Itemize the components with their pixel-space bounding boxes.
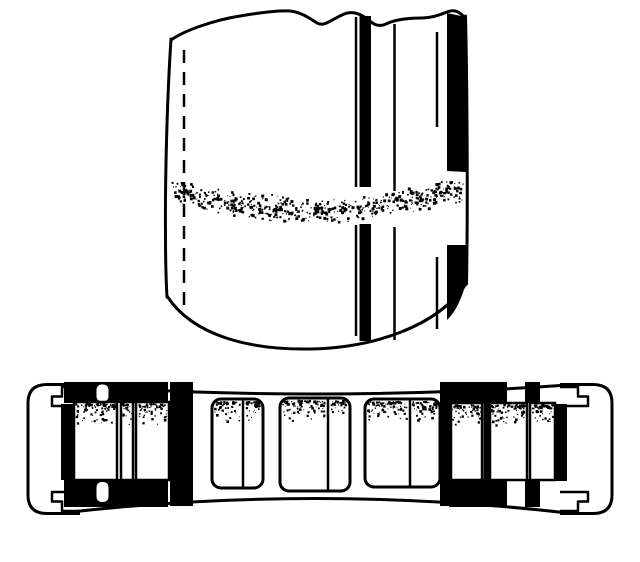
- stipple-dot: [475, 410, 476, 411]
- left-top-black-band: [64, 382, 168, 403]
- stipple-dot: [241, 205, 242, 206]
- stipple-dot: [542, 419, 544, 421]
- stipple-dot: [433, 198, 436, 201]
- stipple-dot: [523, 417, 524, 418]
- stipple-dot: [220, 406, 222, 408]
- stipple-dot: [233, 211, 235, 213]
- stipple-dot: [220, 401, 222, 403]
- stipple-dot: [340, 404, 342, 406]
- stipple-dot: [425, 401, 427, 403]
- stipple-dot: [238, 209, 240, 211]
- stipple-dot: [500, 417, 503, 420]
- stipple-dot: [541, 404, 544, 407]
- stipple-dot: [389, 197, 390, 198]
- stipple-dot: [349, 211, 351, 213]
- stipple-dot: [337, 211, 338, 212]
- stipple-dot: [497, 411, 498, 412]
- stipple-dot: [241, 211, 243, 213]
- stipple-dot: [442, 192, 443, 193]
- stipple-dot: [405, 207, 408, 210]
- stipple-dot: [454, 417, 455, 418]
- stipple-dot: [434, 194, 437, 197]
- stipple-dot: [222, 410, 223, 411]
- stipple-dot: [104, 408, 106, 410]
- stipple-dot: [164, 404, 165, 405]
- stipple-dot: [83, 411, 85, 413]
- stipple-dot: [231, 191, 234, 194]
- stipple-dot: [181, 182, 183, 184]
- stipple-dot: [456, 190, 458, 192]
- stipple-dot: [355, 201, 357, 203]
- stipple-dot: [400, 409, 402, 411]
- stipple-dot: [88, 403, 90, 405]
- stipple-dot: [248, 401, 251, 404]
- stipple-dot: [273, 216, 275, 218]
- stipple-dot: [269, 209, 271, 211]
- stipple-dot: [297, 212, 298, 213]
- stipple-dot: [345, 404, 347, 406]
- stipple-dot: [181, 184, 183, 186]
- stipple-dot: [385, 404, 386, 405]
- stipple-dot: [437, 189, 439, 191]
- stipple-dot: [547, 420, 549, 422]
- stipple-dot: [477, 407, 479, 409]
- stipple-dot: [416, 410, 417, 411]
- stipple-dot: [381, 405, 383, 407]
- stipple-dot: [425, 408, 427, 410]
- stipple-dot: [381, 207, 383, 209]
- stipple-dot: [537, 420, 538, 421]
- stipple-dot: [262, 209, 264, 211]
- stipple-dot: [86, 409, 87, 410]
- stipple-dot: [330, 216, 332, 218]
- stipple-dot: [106, 410, 107, 411]
- stipple-dot: [239, 417, 240, 418]
- stipple-dot: [262, 198, 263, 199]
- stipple-dot: [372, 409, 373, 410]
- stipple-dot: [282, 210, 283, 211]
- stipple-dot: [375, 201, 378, 204]
- stipple-dot: [236, 402, 237, 403]
- stipple-dot: [102, 418, 105, 421]
- stipple-dot: [368, 198, 369, 199]
- stipple-dot: [151, 406, 152, 407]
- stipple-dot: [362, 217, 365, 220]
- stipple-dot: [433, 404, 435, 406]
- stipple-dot: [198, 200, 200, 202]
- stipple-dot: [279, 216, 281, 218]
- stipple-dot: [385, 412, 386, 413]
- stipple-dot: [92, 407, 94, 409]
- stipple-dot: [387, 205, 388, 206]
- stipple-dot: [378, 204, 379, 205]
- stipple-dot: [391, 193, 394, 196]
- stipple-dot: [373, 202, 375, 204]
- stipple-dot: [283, 411, 284, 412]
- stipple-dot: [166, 410, 167, 411]
- stipple-dot: [495, 420, 497, 422]
- stipple-dot: [94, 420, 96, 422]
- stipple-dot: [417, 402, 419, 404]
- stipple-dot: [404, 413, 406, 415]
- stipple-dot: [75, 403, 77, 405]
- stipple-dot: [454, 183, 455, 184]
- stipple-dot: [553, 404, 555, 406]
- stipple-dot: [160, 412, 162, 414]
- stipple-dot: [85, 407, 86, 408]
- stipple-dot: [457, 405, 459, 407]
- stipple-dot: [404, 407, 406, 409]
- stipple-dot: [331, 219, 334, 222]
- stipple-dot: [494, 415, 496, 417]
- stipple-dot: [479, 407, 480, 408]
- stipple-dot: [301, 204, 302, 205]
- stipple-dot: [286, 213, 287, 214]
- stipple-dot: [472, 412, 473, 413]
- stipple-dot: [90, 413, 92, 415]
- stipple-dot: [112, 404, 114, 406]
- stipple-dot: [125, 404, 127, 406]
- stipple-dot: [81, 405, 83, 407]
- stipple-dot: [375, 408, 376, 409]
- stipple-dot: [217, 195, 220, 198]
- stipple-dot: [145, 409, 147, 411]
- stipple-dot: [382, 409, 385, 412]
- left-top-slot: [97, 385, 109, 402]
- stipple-dot: [200, 189, 202, 191]
- stipple-dot: [182, 204, 183, 205]
- stipple-dot: [154, 415, 155, 416]
- stipple-dot: [416, 415, 418, 417]
- stipple-dot: [286, 221, 287, 222]
- left-cell-group: [74, 402, 169, 480]
- stipple-dot: [417, 197, 419, 199]
- stipple-dot: [317, 407, 318, 408]
- stipple-dot: [402, 191, 404, 193]
- stipple-dot: [155, 404, 157, 406]
- stipple-dot: [214, 195, 215, 196]
- stipple-dot: [297, 406, 298, 407]
- stipple-dot: [441, 181, 443, 183]
- middle-cell-group-1: [212, 399, 263, 488]
- stipple-dot: [329, 208, 332, 211]
- stipple-dot: [101, 423, 102, 424]
- stipple-dot: [407, 194, 409, 196]
- stipple-dot: [317, 209, 319, 211]
- stipple-dot: [153, 403, 155, 405]
- stipple-dot: [309, 213, 311, 215]
- stipple-dot: [383, 196, 384, 197]
- stipple-dot: [317, 401, 319, 403]
- stipple-dot: [300, 407, 301, 408]
- stipple-dot: [259, 210, 262, 213]
- stipple-dot: [332, 401, 333, 402]
- stipple-dot: [243, 198, 245, 200]
- stipple-dot: [249, 201, 251, 203]
- stipple-dot: [459, 201, 461, 203]
- stipple-dot: [440, 195, 442, 197]
- stipple-dot: [458, 412, 459, 413]
- stipple-dot: [551, 407, 553, 409]
- stipple-dot: [224, 204, 226, 206]
- stipple-dot: [414, 408, 415, 409]
- stipple-dot: [322, 401, 323, 402]
- stipple-dot: [149, 407, 150, 408]
- stipple-dot: [252, 198, 255, 201]
- stipple-dot: [439, 192, 442, 195]
- right-cell-group: [451, 403, 555, 480]
- stipple-dot: [417, 406, 419, 408]
- stipple-dot: [183, 195, 186, 198]
- stipple-dot: [394, 411, 396, 413]
- stipple-dot: [284, 201, 286, 203]
- stipple-dot: [294, 214, 296, 216]
- stipple-dot: [265, 213, 266, 214]
- stipple-dot: [369, 415, 371, 417]
- stipple-dot: [282, 203, 285, 206]
- stipple-dot: [455, 424, 457, 426]
- stipple-dot: [320, 207, 321, 208]
- stipple-dot: [364, 211, 365, 212]
- stipple-dot: [413, 401, 415, 403]
- figure-canvas: [0, 0, 640, 562]
- stipple-dot: [410, 192, 413, 195]
- stipple-dot: [296, 216, 297, 217]
- stipple-dot: [323, 411, 325, 413]
- stipple-dot: [373, 205, 376, 208]
- stipple-dot: [214, 408, 217, 411]
- stipple-dot: [327, 203, 329, 205]
- stipple-dot: [433, 413, 435, 415]
- stipple-dot: [431, 411, 433, 413]
- stipple-dot: [272, 210, 274, 212]
- stipple-dot: [360, 206, 361, 207]
- stipple-dot: [229, 417, 231, 419]
- stipple-dot: [256, 195, 257, 196]
- stipple-dot: [262, 218, 264, 220]
- stipple-dot: [316, 216, 318, 218]
- stipple-dot: [421, 204, 422, 205]
- stipple-dot: [196, 192, 198, 194]
- stipple-dot: [505, 412, 507, 414]
- stipple-dot: [435, 407, 437, 409]
- stipple-dot: [435, 201, 438, 204]
- stipple-dot: [420, 402, 421, 403]
- stipple-dot: [357, 206, 360, 209]
- stipple-dot: [323, 217, 326, 220]
- stipple-dot: [114, 406, 115, 407]
- stipple-dot: [235, 412, 236, 413]
- stipple-dot: [507, 407, 508, 408]
- stipple-dot: [421, 404, 423, 406]
- stipple-dot: [282, 213, 283, 214]
- stipple-dot: [218, 404, 219, 405]
- stipple-dot: [316, 404, 317, 405]
- stipple-dot: [352, 206, 355, 209]
- stipple-dot: [347, 217, 350, 220]
- stipple-dot: [234, 199, 236, 201]
- stipple-dot: [206, 196, 208, 198]
- stipple-dot: [428, 189, 430, 191]
- stipple-dot: [426, 199, 428, 201]
- stipple-dot: [285, 203, 288, 206]
- stipple-dot: [315, 211, 317, 213]
- stipple-dot: [379, 406, 380, 407]
- stipple-dot: [248, 193, 250, 195]
- stipple-dot: [130, 418, 131, 419]
- stipple-dot: [428, 207, 431, 210]
- stipple-dot: [258, 408, 260, 410]
- stipple-dot: [157, 424, 158, 425]
- stipple-dot: [399, 207, 402, 210]
- stipple-dot: [205, 194, 207, 196]
- stipple-dot: [315, 204, 318, 207]
- stipple-dot: [161, 404, 163, 406]
- stipple-dot: [192, 185, 194, 187]
- stipple-dot: [260, 206, 261, 207]
- stipple-dot: [313, 215, 315, 217]
- stipple-dot: [356, 215, 358, 217]
- stipple-dot: [235, 402, 237, 404]
- stipple-dot: [544, 417, 546, 419]
- stipple-dot: [472, 405, 474, 407]
- stipple-dot: [293, 412, 295, 414]
- stipple-dot: [204, 192, 206, 194]
- stipple-dot: [104, 405, 106, 407]
- stipple-dot: [411, 202, 412, 203]
- stipple-dot: [255, 412, 256, 413]
- stipple-dot: [165, 404, 166, 405]
- stipple-dot: [292, 413, 293, 414]
- stipple-dot: [338, 411, 339, 412]
- stipple-dot: [535, 417, 536, 418]
- stipple-dot: [335, 407, 336, 408]
- stipple-dot: [324, 205, 325, 206]
- stipple-dot: [130, 406, 131, 407]
- stipple-dot: [466, 414, 467, 415]
- stipple-dot: [539, 415, 541, 417]
- stipple-dot: [311, 207, 312, 208]
- stipple-dot: [207, 195, 209, 197]
- stipple-dot: [287, 403, 290, 406]
- stipple-dot: [516, 410, 517, 411]
- right-bottom-black-bar: [525, 479, 540, 507]
- stipple-dot: [503, 421, 504, 422]
- stipple-dot: [380, 403, 382, 405]
- stipple-dot: [400, 199, 403, 202]
- stipple-dot: [227, 407, 229, 409]
- stipple-dot: [232, 194, 234, 196]
- stipple-dot: [419, 200, 422, 203]
- stipple-dot: [214, 198, 216, 200]
- stipple-dot: [199, 196, 201, 198]
- stipple-dot: [376, 199, 378, 201]
- stipple-dot: [387, 208, 388, 209]
- stipple-dot: [184, 193, 185, 194]
- stipple-dot: [239, 404, 241, 406]
- stipple-dot: [374, 413, 375, 414]
- stipple-dot: [428, 203, 429, 204]
- stipple-dot: [309, 407, 310, 408]
- stipple-dot: [129, 411, 130, 412]
- stipple-dot: [535, 406, 537, 408]
- stipple-dot: [246, 415, 248, 417]
- stipple-dot: [177, 183, 179, 185]
- stipple-dot: [476, 412, 479, 415]
- stipple-dot: [142, 408, 143, 409]
- stipple-dot: [140, 409, 142, 411]
- stipple-dot: [97, 403, 99, 405]
- stipple-dot: [291, 401, 292, 402]
- stipple-dot: [201, 203, 203, 205]
- stipple-dot: [233, 202, 235, 204]
- stipple-dot: [431, 417, 434, 420]
- stipple-dot: [515, 418, 518, 421]
- stipple-dot: [455, 411, 456, 412]
- stipple-dot: [394, 402, 397, 405]
- stipple-dot: [347, 221, 348, 222]
- stipple-dot: [546, 405, 548, 407]
- right-bottom-black-band: [449, 479, 507, 507]
- stipple-dot: [424, 406, 426, 408]
- stipple-dot: [514, 408, 516, 410]
- stipple-dot: [338, 221, 341, 224]
- stipple-dot: [178, 197, 180, 199]
- stipple-band: [172, 181, 464, 223]
- stipple-dot: [492, 421, 495, 424]
- stipple-dot: [473, 408, 475, 410]
- stipple-dot: [283, 404, 284, 405]
- cell: [490, 403, 527, 480]
- stipple-dot: [189, 192, 191, 194]
- stipple-dot: [181, 191, 184, 194]
- stipple-dot: [258, 402, 260, 404]
- stipple-dot: [536, 404, 538, 406]
- stipple-dot: [376, 402, 378, 404]
- stipple-dot: [429, 405, 431, 407]
- stipple-dot: [349, 204, 350, 205]
- stipple-dot: [462, 409, 464, 411]
- stipple-dot: [379, 412, 380, 413]
- stipple-dot: [275, 205, 277, 207]
- stipple-dot: [253, 411, 254, 412]
- stipple-dot: [426, 194, 428, 196]
- stipple-dot: [497, 410, 498, 411]
- stipple-dot: [391, 198, 392, 199]
- stipple-dot: [385, 193, 388, 196]
- stipple-dot: [289, 417, 291, 419]
- stipple-dot: [151, 418, 153, 420]
- stipple-dot: [243, 207, 244, 208]
- stipple-dot: [383, 405, 386, 408]
- stipple-dot: [398, 414, 399, 415]
- stipple-dot: [458, 408, 459, 409]
- stipple-dot: [207, 202, 210, 205]
- stipple-dot: [225, 413, 227, 415]
- stipple-dot: [363, 196, 365, 198]
- stipple-dot: [322, 210, 323, 211]
- stipple-dot: [301, 400, 303, 402]
- stipple-dot: [521, 406, 522, 407]
- stipple-dot: [180, 186, 181, 187]
- stipple-dot: [422, 408, 425, 411]
- stipple-dot: [193, 196, 196, 199]
- stipple-dot: [297, 210, 300, 213]
- stipple-dot: [362, 199, 363, 200]
- stipple-dot: [106, 407, 107, 408]
- stipple-dot: [302, 210, 304, 212]
- stipple-dot: [268, 214, 271, 217]
